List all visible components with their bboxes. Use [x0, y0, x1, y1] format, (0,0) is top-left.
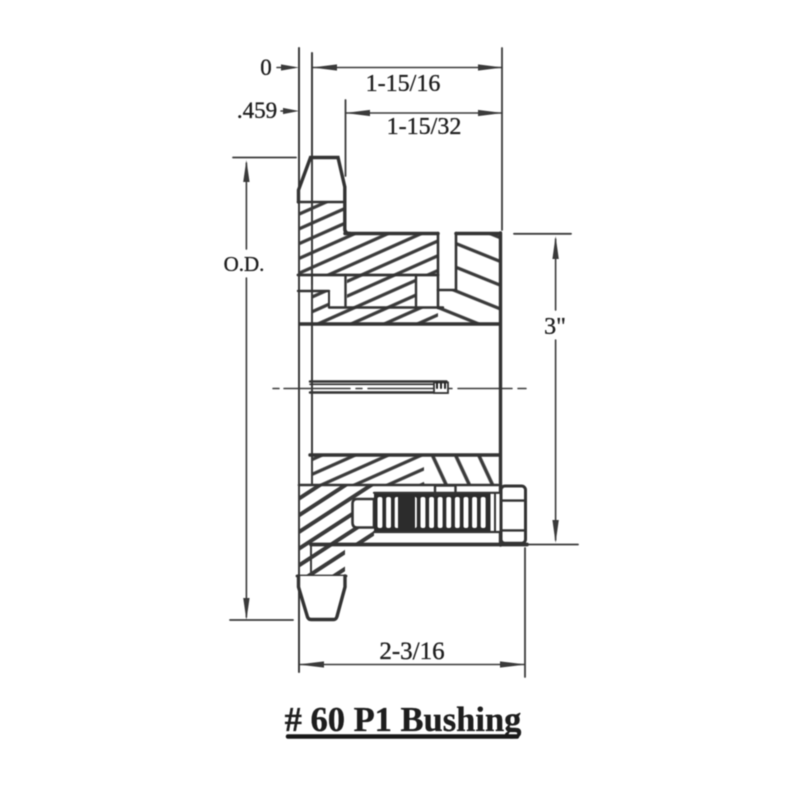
svg-text:2-3/16: 2-3/16 — [379, 638, 444, 665]
svg-text:3": 3" — [544, 314, 566, 340]
svg-text:1-15/32: 1-15/32 — [387, 114, 462, 140]
svg-text:.459: .459 — [237, 98, 277, 123]
svg-text:1-15/16: 1-15/16 — [366, 71, 441, 97]
svg-text:# 60 P1 Bushing: # 60 P1 Bushing — [285, 701, 522, 739]
svg-text:O.D.: O.D. — [224, 252, 265, 276]
svg-text:0: 0 — [260, 55, 272, 80]
